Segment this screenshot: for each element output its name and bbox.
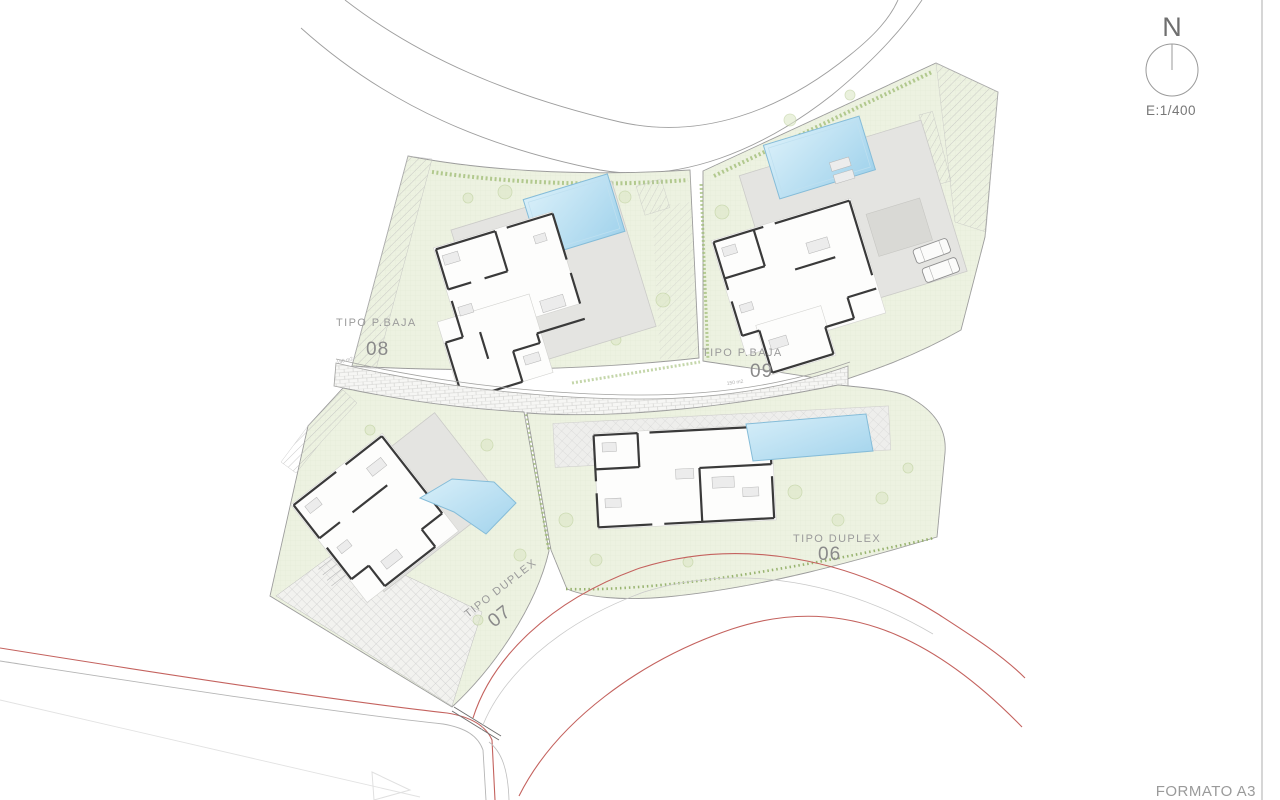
furniture-mark bbox=[712, 476, 735, 488]
tree-mark bbox=[832, 514, 844, 526]
north-indicator: N E:1/400 bbox=[1146, 12, 1198, 118]
tree-mark bbox=[481, 439, 493, 451]
plot-08-number: 08 bbox=[366, 339, 389, 360]
upper-road-outer-line bbox=[345, 0, 898, 127]
furniture-mark bbox=[675, 468, 693, 479]
furniture-mark bbox=[602, 442, 616, 452]
plot-09 bbox=[689, 63, 998, 382]
tree-mark bbox=[463, 193, 473, 203]
furniture-mark bbox=[605, 498, 621, 508]
plot-08-area-label: 150 m2 bbox=[336, 356, 354, 366]
plot-07 bbox=[270, 388, 549, 707]
tree-mark bbox=[498, 185, 512, 199]
plot-09-area-label: 150 m2 bbox=[726, 379, 744, 387]
junction-wall-lines bbox=[452, 707, 501, 740]
tree-mark bbox=[514, 549, 526, 561]
tree-mark bbox=[788, 485, 802, 499]
format-label: FORMATO A3 bbox=[1156, 783, 1256, 800]
site-plan-drawing: TIPO P.BAJA 08 150 m2 TIPO P.BAJA 09 150… bbox=[0, 0, 1280, 800]
faint-boundary-line bbox=[0, 700, 420, 797]
plot-08-driveway-hatch bbox=[652, 202, 698, 360]
tree-mark bbox=[559, 513, 573, 527]
plot-06-number: 06 bbox=[818, 544, 841, 565]
tree-mark bbox=[876, 492, 888, 504]
tree-mark bbox=[590, 554, 602, 566]
faint-arrow-mark bbox=[372, 772, 410, 800]
plot-06 bbox=[527, 385, 945, 599]
plot-08-type-label: TIPO P.BAJA bbox=[336, 317, 417, 329]
tree-mark bbox=[619, 191, 631, 203]
tree-mark bbox=[845, 90, 855, 100]
grey-arc-line bbox=[481, 578, 933, 730]
plot-08 bbox=[352, 156, 699, 401]
tree-mark bbox=[656, 293, 670, 307]
plot-09-number: 09 bbox=[750, 361, 773, 382]
tree-mark bbox=[715, 205, 729, 219]
tree-mark bbox=[903, 463, 913, 473]
scale-label: E:1/400 bbox=[1146, 103, 1196, 118]
tree-mark bbox=[365, 425, 375, 435]
north-label: N bbox=[1162, 12, 1182, 42]
tree-mark bbox=[784, 114, 796, 126]
furniture-mark bbox=[743, 487, 759, 497]
tree-mark bbox=[683, 557, 693, 567]
red-arc-inner bbox=[519, 616, 1022, 796]
plot-09-type-label: TIPO P.BAJA bbox=[702, 347, 783, 359]
